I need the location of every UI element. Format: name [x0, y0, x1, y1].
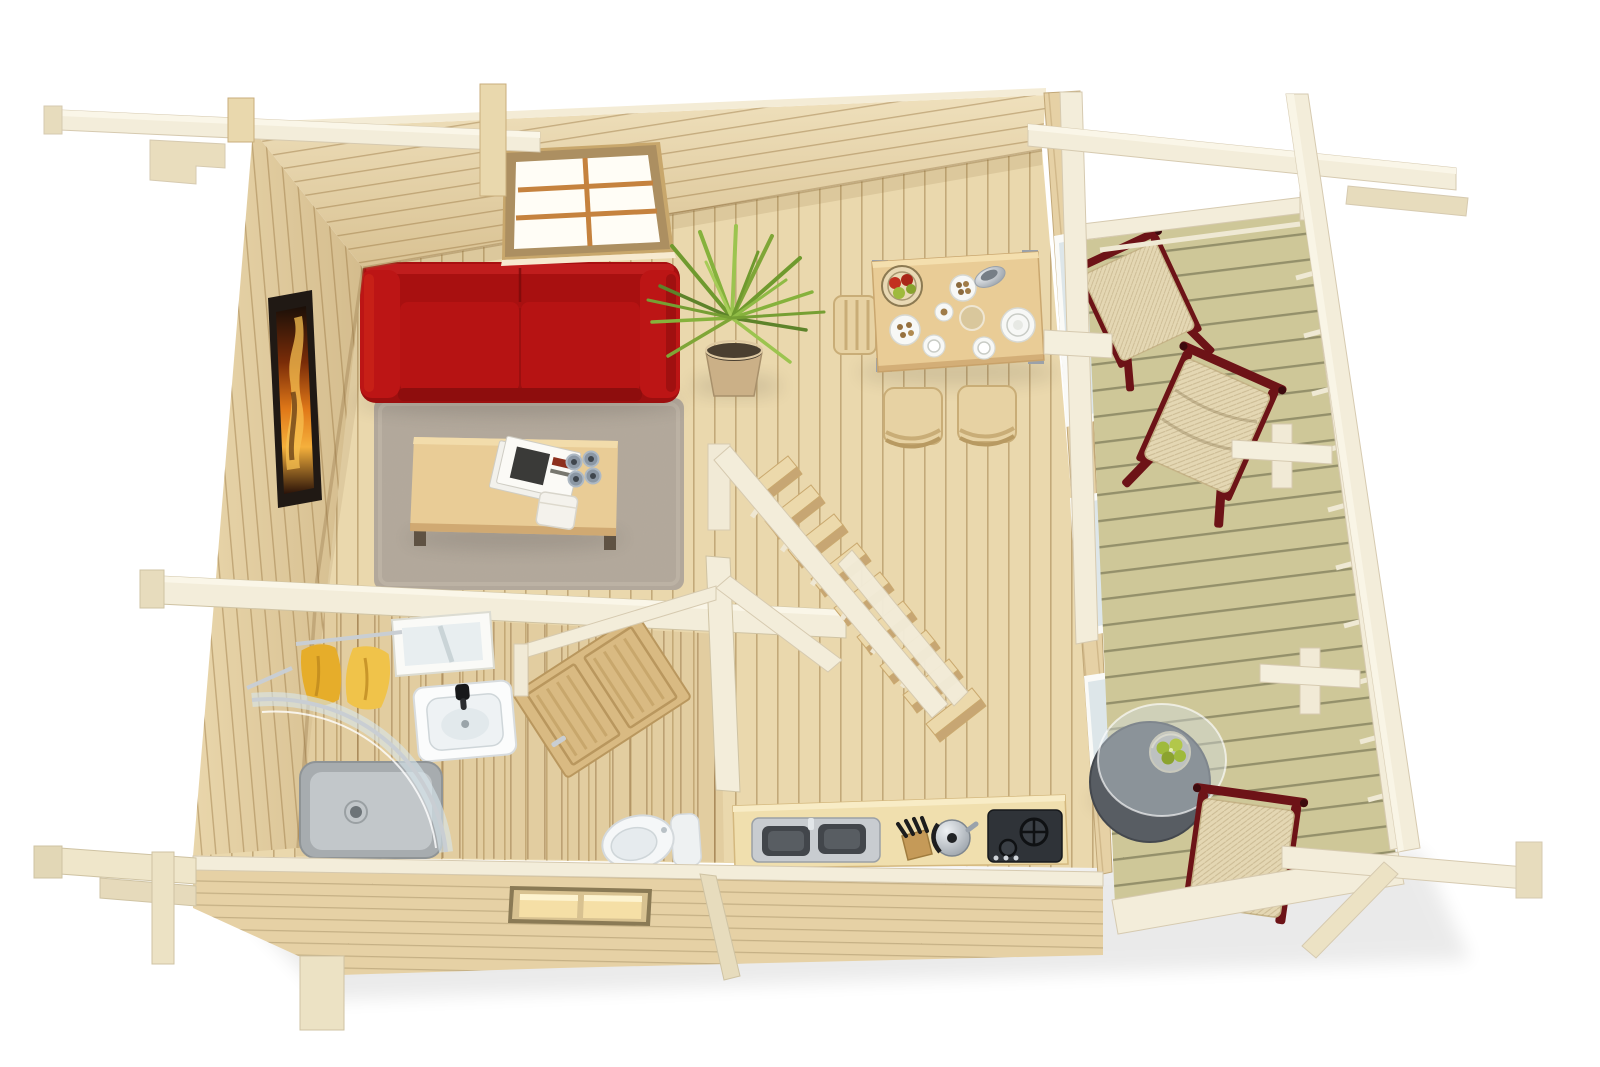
coffee-table [405, 435, 625, 550]
red-sofa [360, 262, 680, 403]
white-box [536, 491, 579, 530]
north-window [501, 142, 676, 266]
dining-chair-left [834, 296, 876, 354]
kitchen-sink [752, 818, 880, 862]
wash-basin [413, 680, 517, 762]
corbel-bracket [150, 140, 225, 184]
sink-tap [808, 818, 814, 830]
foundation-block [300, 956, 344, 1030]
corner-log-ends [34, 846, 196, 964]
pergola-top-beam [1028, 124, 1468, 216]
kitchen [733, 795, 1068, 868]
bathroom-mirror [392, 612, 494, 676]
dining-chair-bottom-1 [884, 388, 942, 447]
cabin-render-canvas [0, 0, 1600, 1067]
plant-pot [706, 341, 762, 396]
window-post [480, 84, 506, 196]
toilet-cistern [670, 813, 702, 867]
living-room [355, 262, 685, 590]
south-wall [34, 846, 1103, 1030]
floor-plan-render [0, 0, 1600, 1067]
corner-log-stub [228, 98, 254, 142]
basin-tap [455, 684, 470, 701]
stove [988, 810, 1062, 862]
front-window [508, 886, 652, 926]
fruit-basket [882, 266, 922, 306]
beam-end [140, 570, 164, 608]
dining-chair-bottom-2 [958, 386, 1016, 445]
apple-basket [1150, 732, 1190, 772]
